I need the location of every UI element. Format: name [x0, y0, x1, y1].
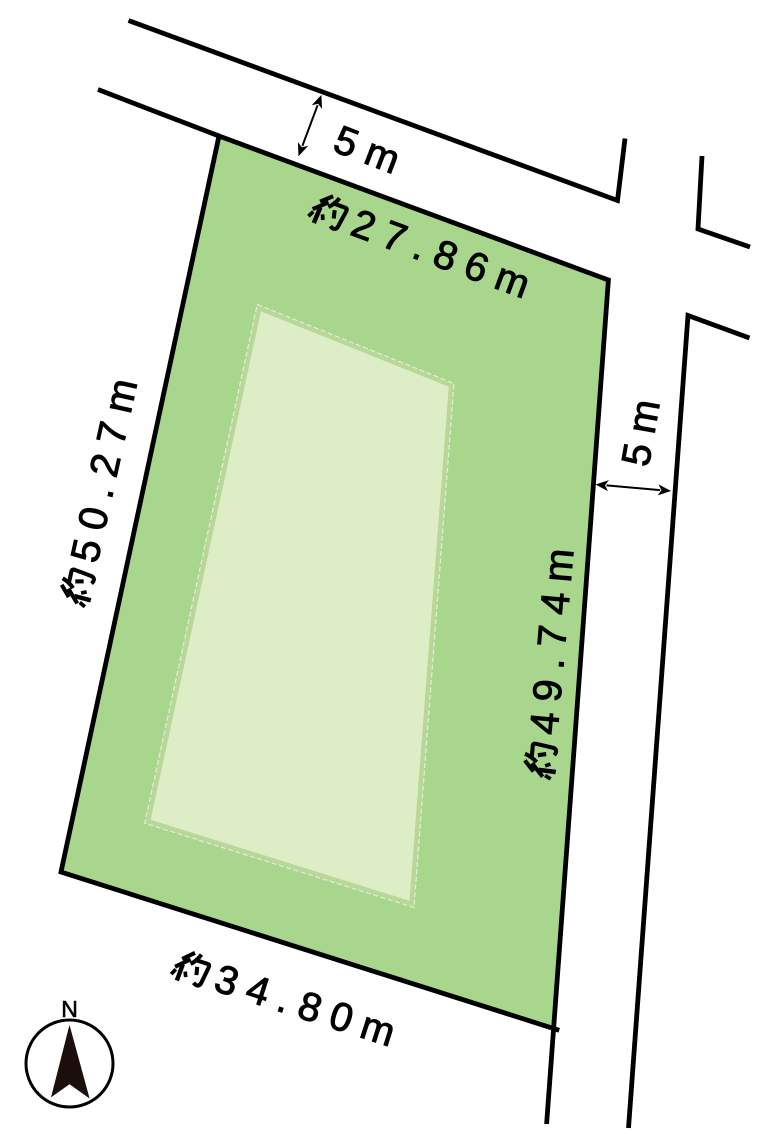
svg-text:5m: 5m [328, 118, 416, 187]
svg-text:N: N [61, 996, 78, 1022]
svg-text:5m: 5m [614, 385, 671, 469]
